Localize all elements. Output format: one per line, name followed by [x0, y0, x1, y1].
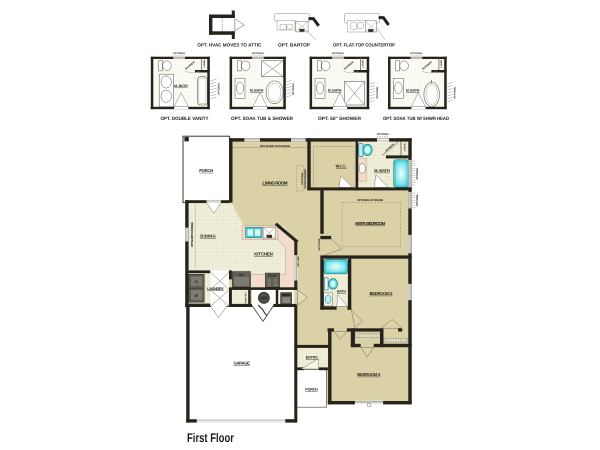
svg-text:BEDROOM 2: BEDROOM 2 — [357, 372, 381, 377]
svg-text:OPTIONAL: OPTIONAL — [416, 194, 419, 207]
svg-text:PANTRY: PANTRY — [245, 292, 248, 303]
svg-text:OPTIONAL: OPTIONAL — [332, 52, 345, 55]
svg-text:KITCHEN: KITCHEN — [254, 251, 273, 256]
svg-text:W.I.C.: W.I.C. — [336, 163, 347, 168]
svg-text:OPTIONAL: OPTIONAL — [292, 82, 295, 95]
svg-text:MSTR. BEDROOM: MSTR. BEDROOM — [355, 221, 385, 226]
svg-text:OPT. REF: OPT. REF — [297, 255, 300, 267]
svg-text:OPTIONAL: OPTIONAL — [453, 86, 456, 99]
svg-text:BATH: BATH — [337, 289, 347, 293]
svg-text:ENTRY: ENTRY — [306, 355, 319, 359]
svg-text:OPTIONAL: OPTIONAL — [252, 52, 265, 55]
svg-text:OPT. FLAT-TOP COUNTERTOP: OPT. FLAT-TOP COUNTERTOP — [333, 42, 395, 47]
svg-text:REF: REF — [239, 273, 245, 277]
svg-text:OPTIONAL: OPTIONAL — [377, 133, 390, 136]
svg-text:LAUNDRY: LAUNDRY — [207, 287, 224, 291]
svg-text:LIVING ROOM: LIVING ROOM — [263, 180, 288, 185]
svg-text:OPT. DOUBLE VANITY: OPT. DOUBLE VANITY — [161, 116, 210, 122]
svg-text:OPT. HVAC MOVES TO ATTIC: OPT. HVAC MOVES TO ATTIC — [197, 42, 262, 47]
svg-text:OPTIONAL: OPTIONAL — [376, 86, 379, 99]
svg-text:WH: WH — [260, 296, 267, 301]
svg-text:OPTIONAL: OPTIONAL — [173, 52, 186, 55]
svg-text:OPTIONAL: OPTIONAL — [218, 82, 221, 95]
svg-text:OPT. SOAK TUB W/ SHWR HEAD: OPT. SOAK TUB W/ SHWR HEAD — [383, 116, 449, 122]
svg-text:OPT. BARTOP: OPT. BARTOP — [278, 42, 310, 47]
svg-text:OPT. SOAK TUB & SHOWER: OPT. SOAK TUB & SHOWER — [231, 116, 294, 122]
svg-text:D/W: D/W — [300, 29, 304, 32]
svg-text:LINEN: LINEN — [440, 59, 443, 67]
svg-text:PORCH: PORCH — [305, 387, 318, 391]
svg-text:LINEN: LINEN — [362, 59, 365, 67]
svg-text:M. BATH: M. BATH — [374, 168, 390, 173]
svg-text:W: W — [195, 294, 199, 298]
svg-text:LINEN: LINEN — [203, 59, 206, 67]
svg-text:BEDROOM 3: BEDROOM 3 — [370, 291, 394, 296]
svg-text:OPTIONAL 12' CEILING: OPTIONAL 12' CEILING — [357, 198, 383, 202]
svg-text:RANGE: RANGE — [268, 275, 277, 278]
svg-text:M. BATH: M. BATH — [174, 84, 188, 88]
svg-text:DINING: DINING — [200, 233, 216, 238]
svg-text:M. BATH: M. BATH — [250, 89, 264, 93]
svg-text:OPT. 60" SHOWER: OPT. 60" SHOWER — [318, 116, 362, 122]
svg-text:GARAGE: GARAGE — [233, 361, 250, 366]
svg-text:D: D — [195, 280, 198, 284]
svg-text:OPTIONAL: OPTIONAL — [410, 52, 423, 55]
svg-text:D/W: D/W — [369, 29, 373, 32]
svg-text:ENTERTAINMENT: ENTERTAINMENT — [304, 168, 307, 188]
svg-text:OPT. SLOPE TO 9' CEILING: OPT. SLOPE TO 9' CEILING — [190, 222, 194, 247]
svg-text:OPT. DOOR: OPT. DOOR — [318, 238, 321, 250]
svg-text:LINEN: LINEN — [403, 143, 406, 151]
svg-text:First Floor: First Floor — [187, 431, 234, 445]
svg-text:PORCH: PORCH — [199, 168, 213, 173]
svg-text:OPTIONAL: OPTIONAL — [416, 167, 419, 180]
svg-text:M. BATH: M. BATH — [328, 89, 342, 93]
svg-text:M. BATH: M. BATH — [406, 89, 420, 93]
svg-text:OPT. SLOPE TO 9' CEILING: OPT. SLOPE TO 9' CEILING — [260, 144, 290, 148]
